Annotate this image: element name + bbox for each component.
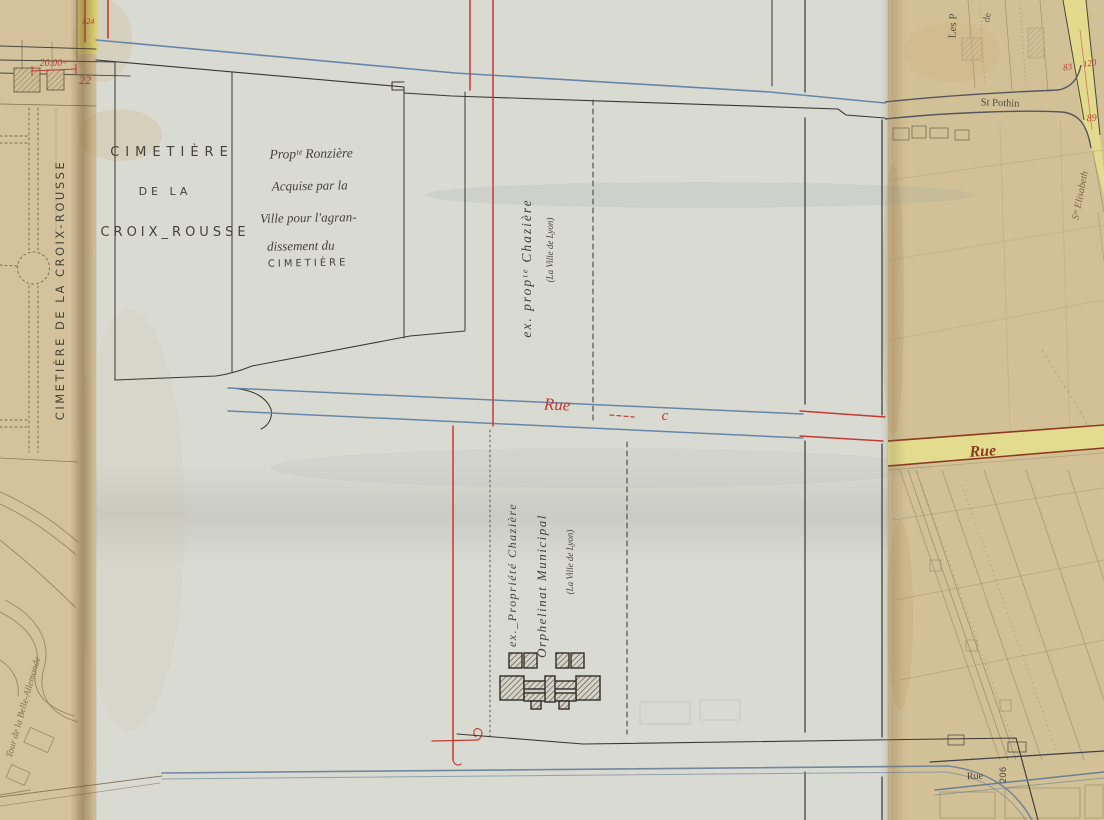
annotation-120: 120 <box>1082 57 1097 69</box>
paper-fold-left <box>70 0 96 820</box>
label-rue-c: Rue <box>543 395 572 415</box>
label-chaziere-sud-sub: (La Ville de Lyon) <box>565 530 575 595</box>
label-cimetiere-line2: DE LA <box>139 185 192 198</box>
label-ronziere-line4: dissement du <box>267 238 335 254</box>
annotation-89: 89 <box>1086 113 1097 125</box>
paper-fold-right <box>880 0 906 820</box>
label-rue-c-letter: c <box>662 408 669 424</box>
label-ronziere-line3: Ville pour l'agran- <box>260 209 357 226</box>
label-cimetiere-line3: CROIX_ROUSSE <box>100 225 249 240</box>
old-map-paper-right <box>888 0 1104 820</box>
label-cimetiere-line1: CIMETIÈRE <box>110 144 234 160</box>
label-chaziere-nord-sub: (La Ville de Lyon) <box>545 218 555 283</box>
annotation-cote-20m: 20.00ᵐ <box>40 58 68 69</box>
overlay-revision-sheet <box>96 0 888 820</box>
building-footprint <box>14 68 40 92</box>
map-scan: CIMETIÈRE DE LA CROIX-ROUSSE CIMETIÈRE D… <box>0 0 1104 820</box>
building-footprint <box>47 70 64 90</box>
label-st-pothin: St Pothin <box>981 97 1021 109</box>
annotation-206: 206 <box>999 767 1009 783</box>
label-chaziere-sud-line1: ex._Propriété Chazière <box>505 503 519 647</box>
map-page: CIMETIÈRE DE LA CROIX-ROUSSE CIMETIÈRE D… <box>0 0 1104 820</box>
label-ronziere-line1: Propᵗᵉ Ronzière <box>268 145 352 161</box>
label-rue-sud: Rue <box>967 771 984 783</box>
label-chaziere-nord: ex. propᵗᵉ Chazière <box>519 198 534 337</box>
label-rue-est: Rue <box>968 442 997 460</box>
label-orphelinat: Orphelinat Municipal <box>534 514 549 658</box>
label-ronziere-line2: Acquise par la <box>271 177 349 193</box>
label-cimetiere-vertical: CIMETIÈRE DE LA CROIX-ROUSSE <box>52 160 67 420</box>
label-les-p: Les P <box>946 13 959 38</box>
